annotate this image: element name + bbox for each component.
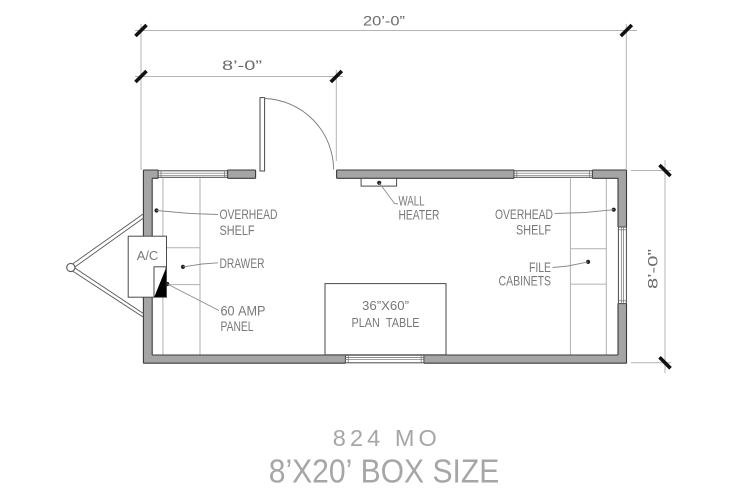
svg-text:OVERHEAD: OVERHEAD	[220, 206, 278, 222]
svg-text:PLAN TABLE: PLAN TABLE	[352, 315, 420, 330]
svg-text:OVERHEAD: OVERHEAD	[495, 206, 553, 222]
svg-text:SHELF: SHELF	[220, 222, 255, 238]
svg-text:8’-0”: 8’-0”	[222, 57, 262, 73]
svg-text:60 AMP: 60 AMP	[221, 303, 266, 319]
svg-text:36”X60”: 36”X60”	[362, 298, 409, 313]
svg-text:PANEL: PANEL	[221, 318, 254, 334]
svg-text:20’-0”: 20’-0”	[363, 13, 405, 29]
svg-text:DRAWER: DRAWER	[220, 255, 265, 271]
svg-text:SHELF: SHELF	[516, 222, 551, 238]
svg-text:HEATER: HEATER	[399, 207, 440, 223]
svg-text:A/C: A/C	[137, 249, 159, 263]
svg-text:CABINETS: CABINETS	[499, 273, 552, 289]
svg-text:8’-0”: 8’-0”	[645, 249, 661, 289]
svg-text:8’X20’ BOX SIZE: 8’X20’ BOX SIZE	[269, 453, 500, 490]
